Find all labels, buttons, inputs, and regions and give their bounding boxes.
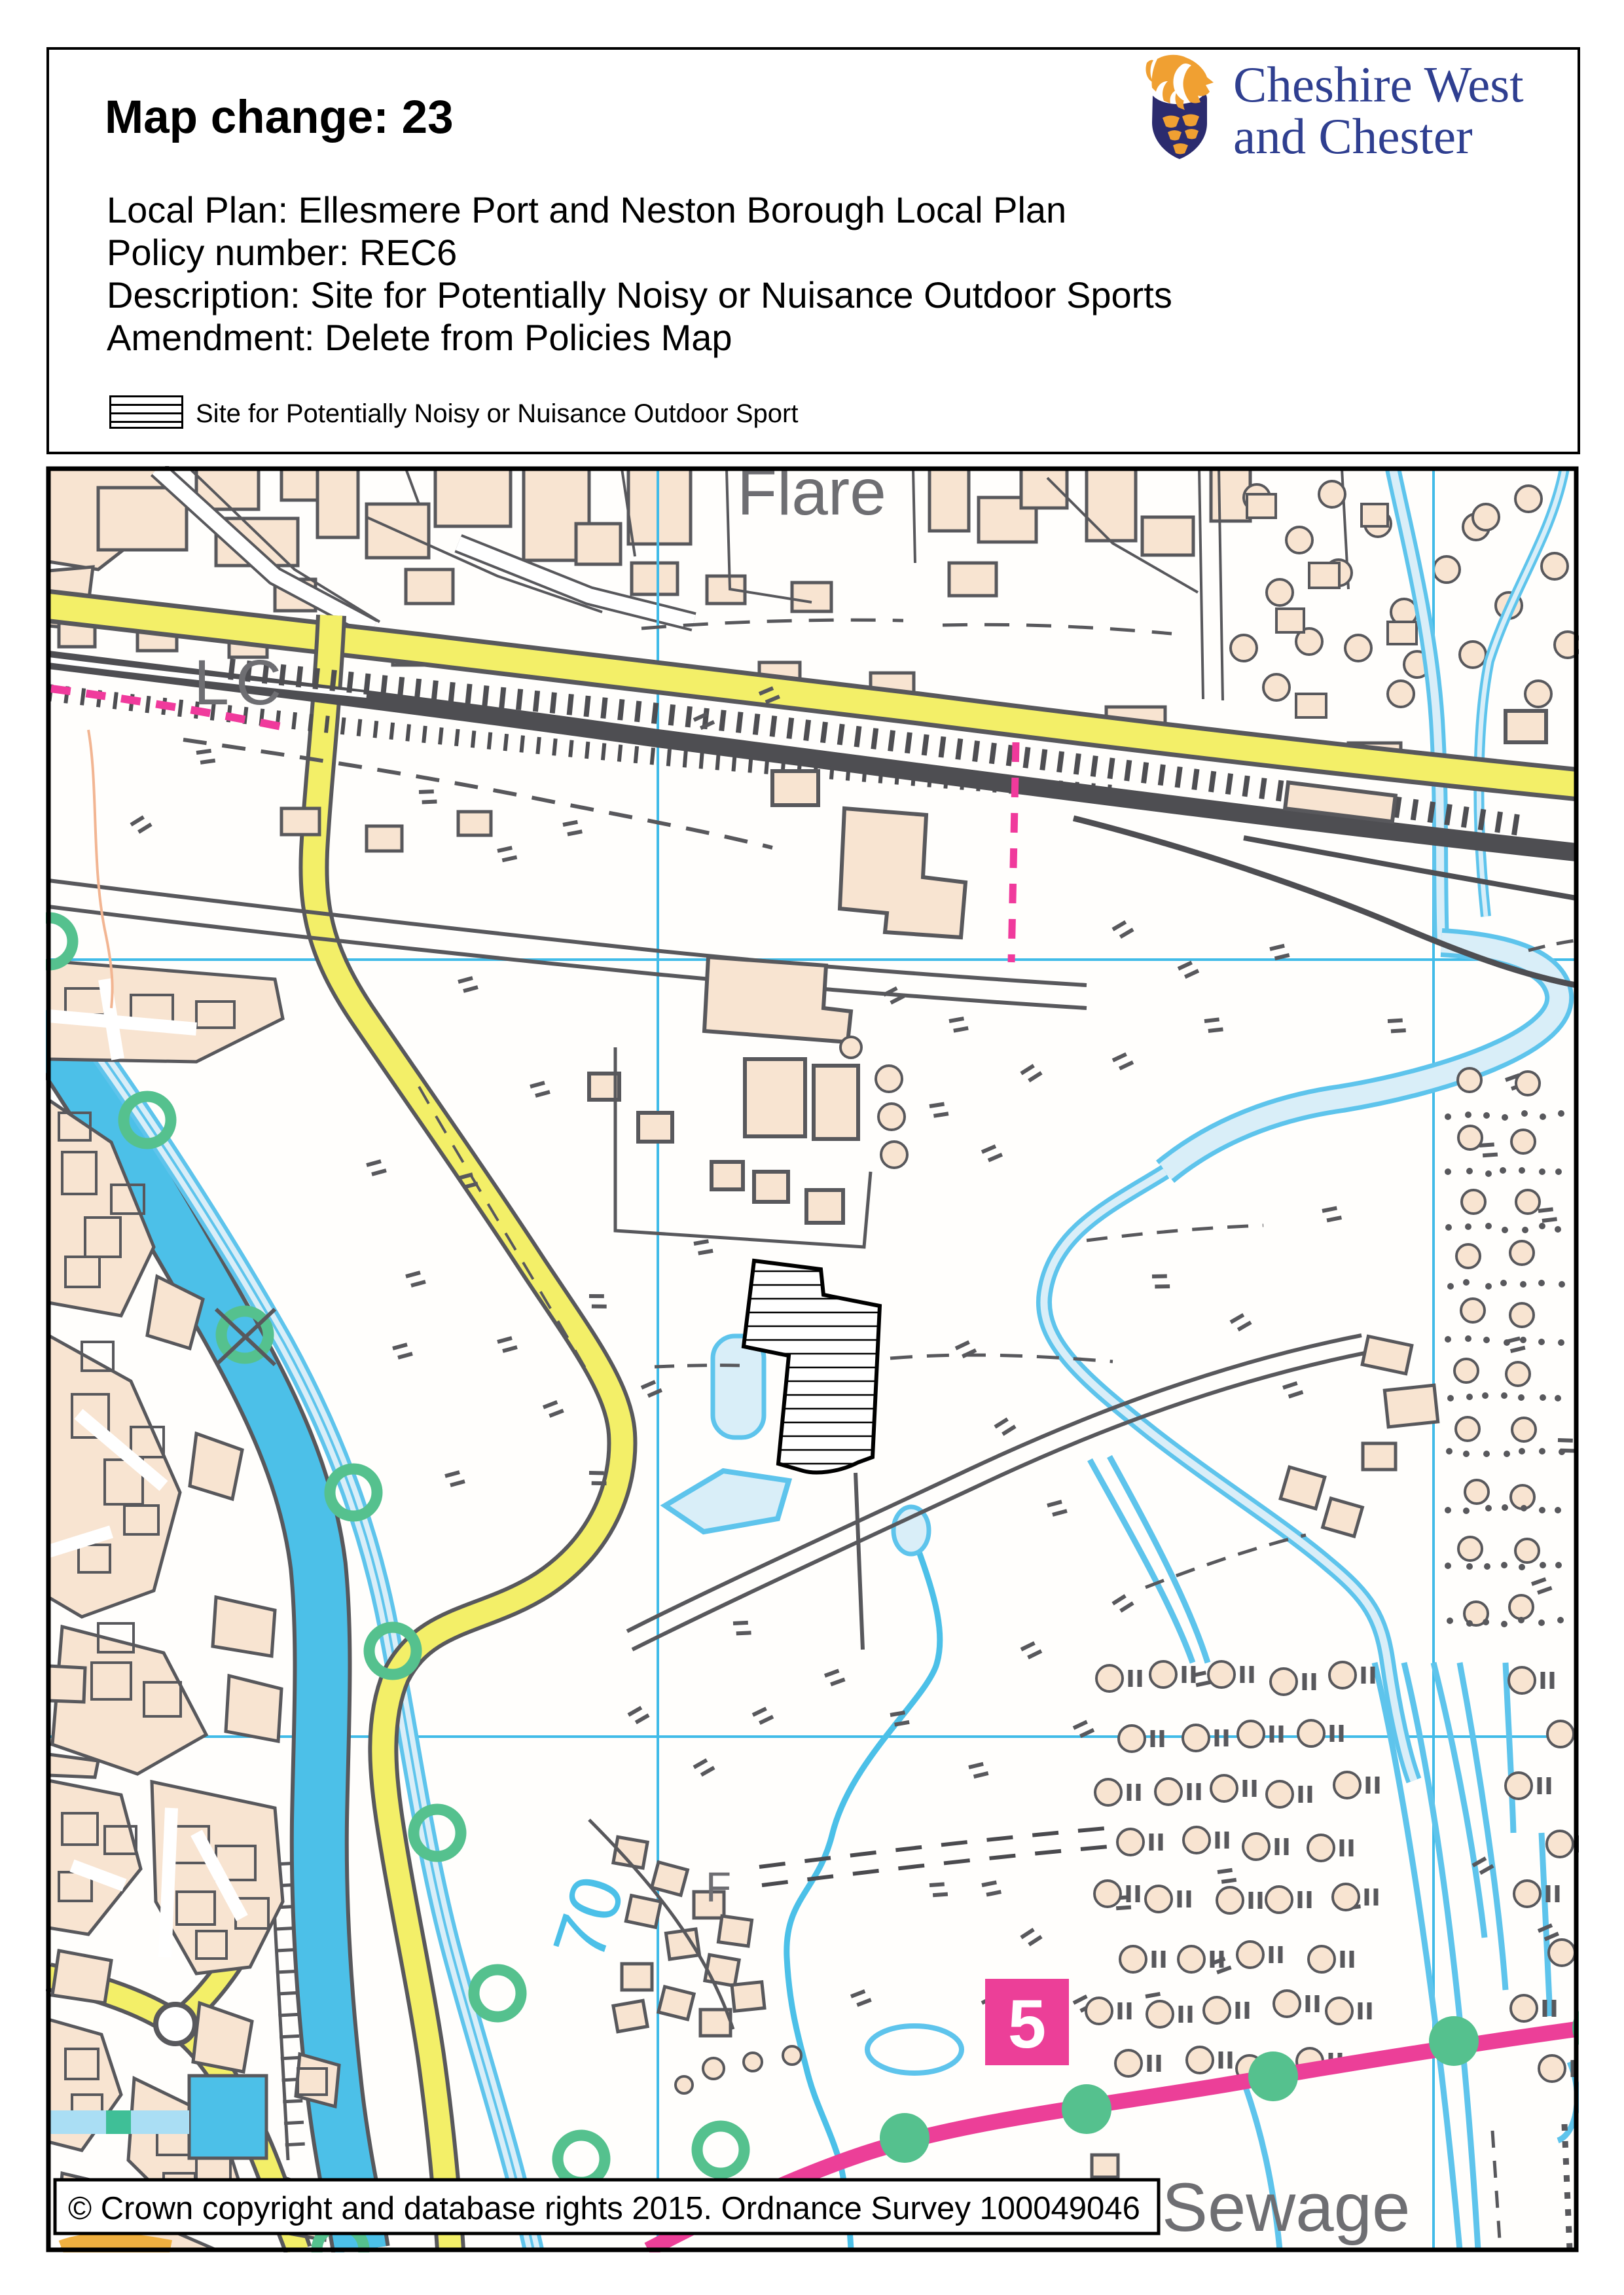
svg-text:5: 5 (1008, 1986, 1046, 2063)
svg-text:© Crown copyright and database: © Crown copyright and database rights 20… (68, 2191, 1140, 2226)
svg-text:F: F (706, 1864, 731, 1911)
svg-text:Sewage: Sewage (1162, 2169, 1410, 2246)
svg-text:LC: LC (194, 647, 288, 718)
